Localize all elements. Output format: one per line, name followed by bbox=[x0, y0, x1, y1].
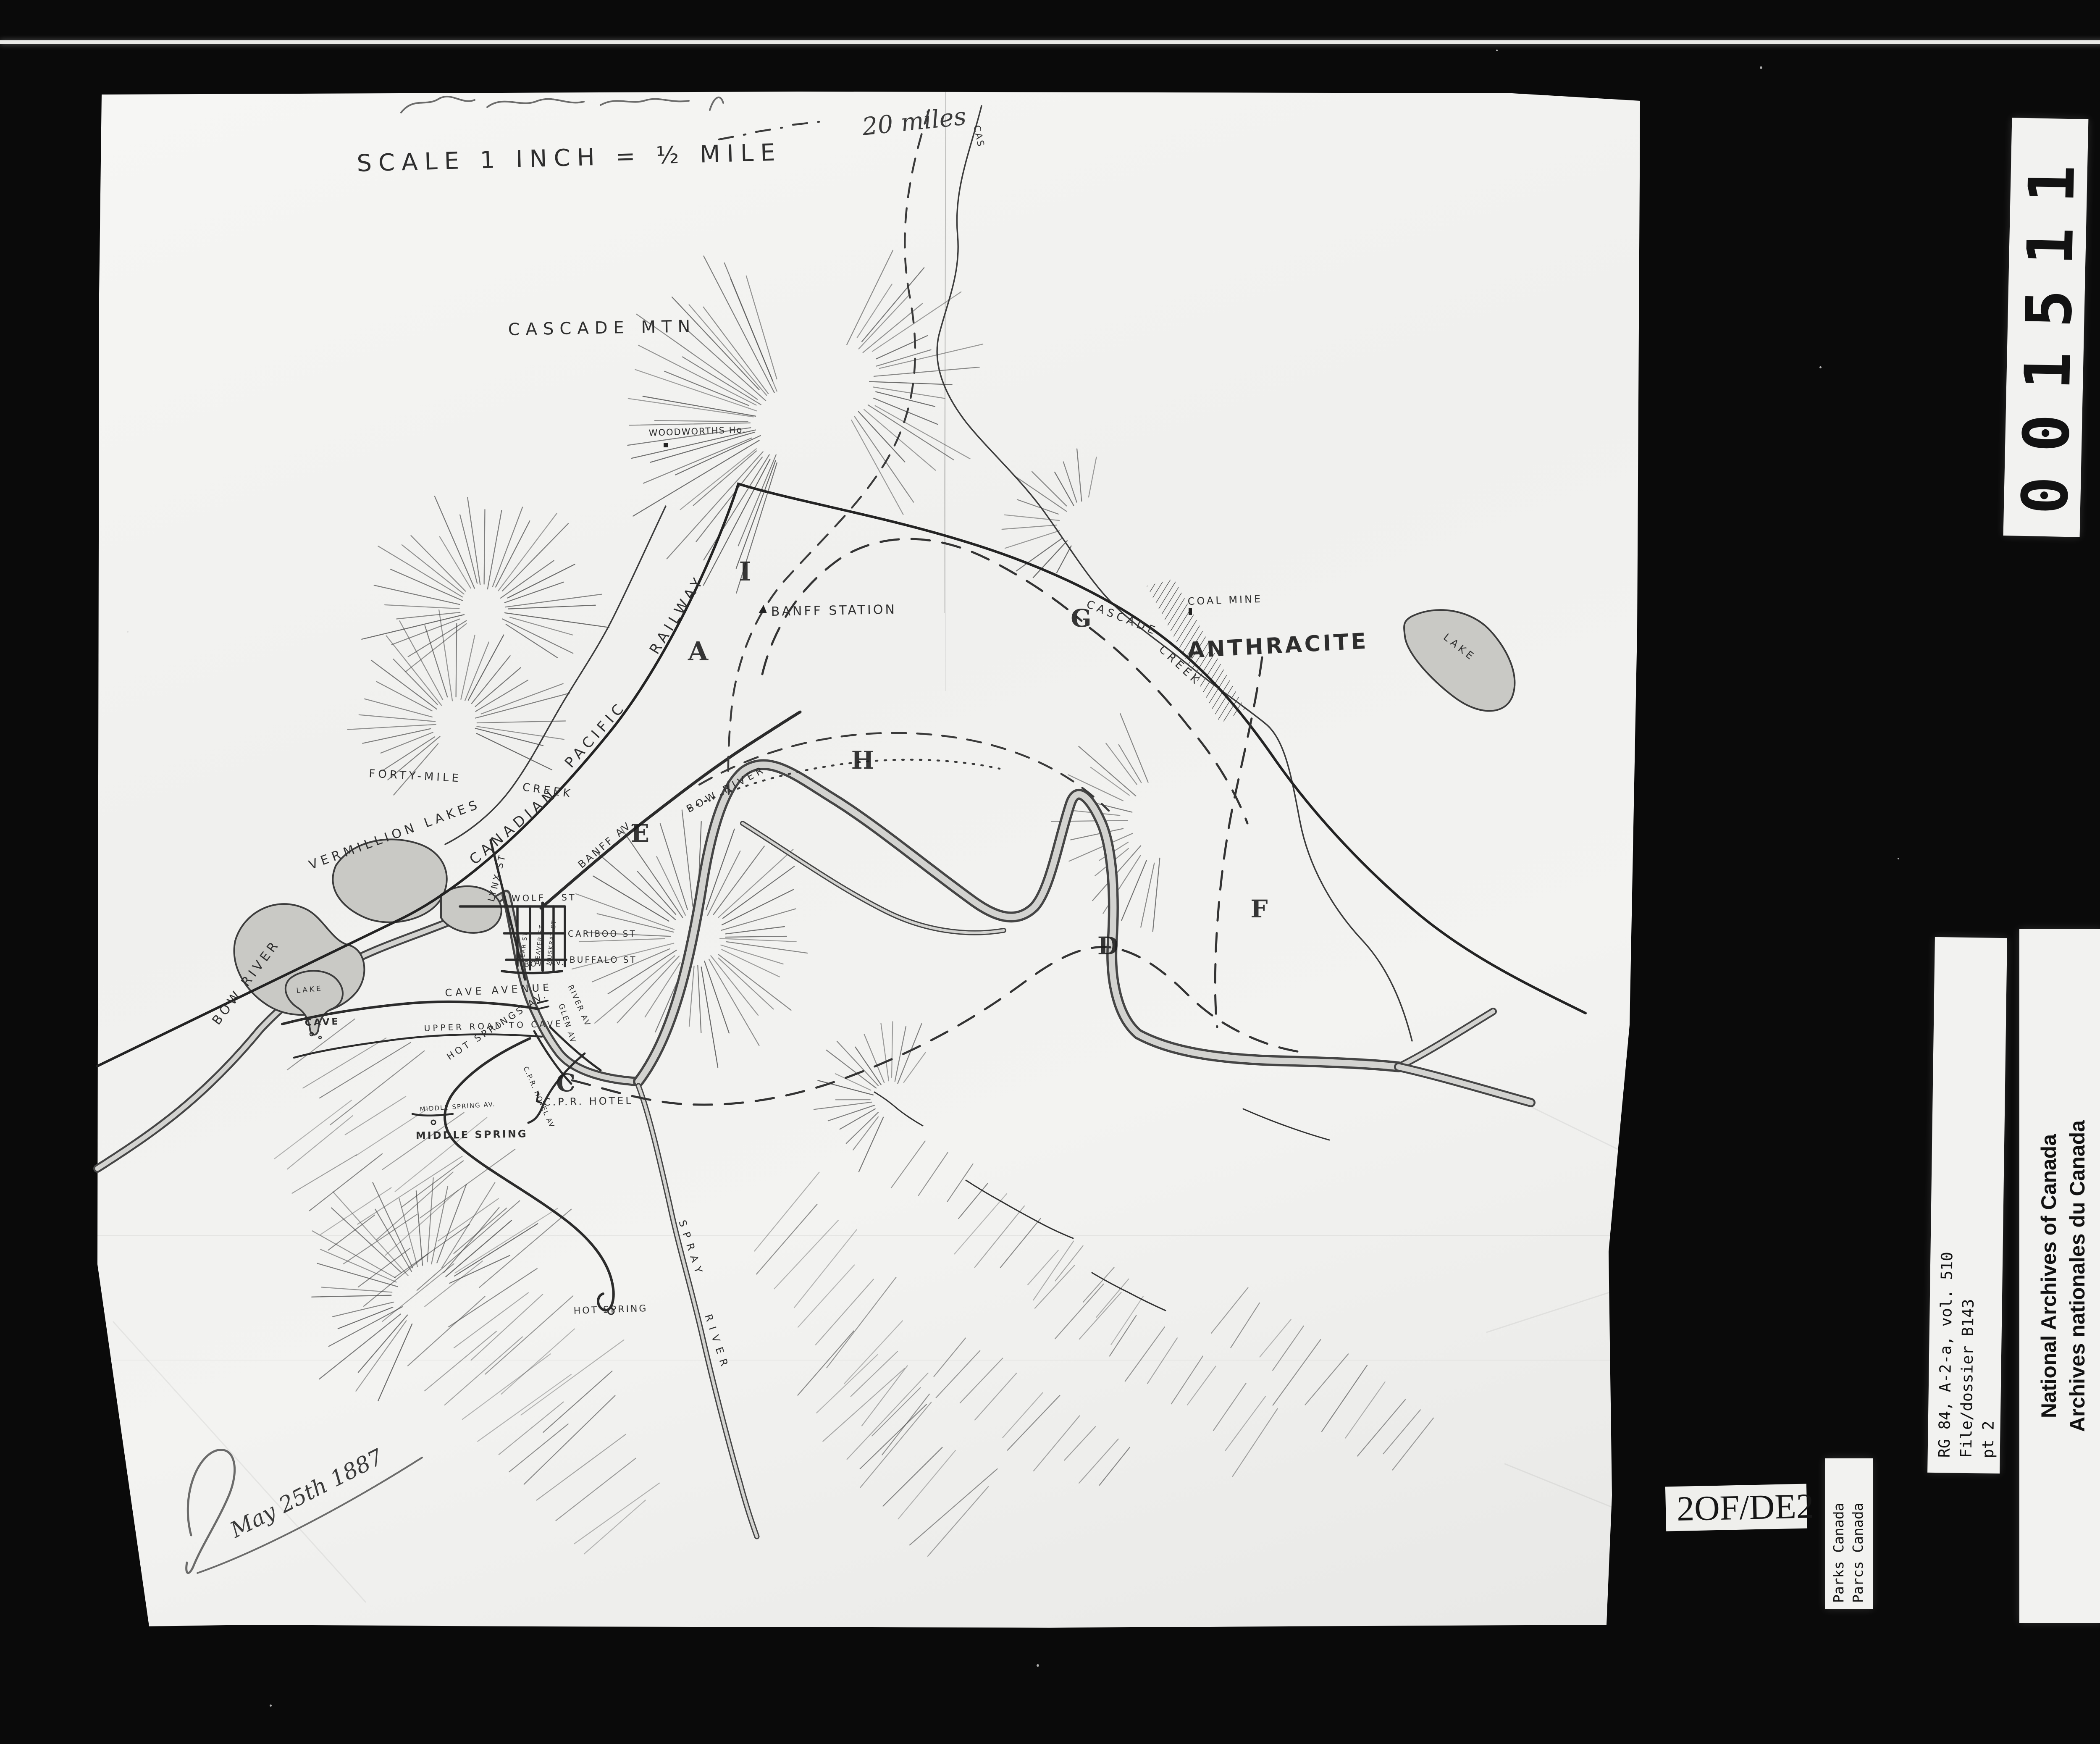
reference-strip: RG 84, A-2-a, vol. 510 File/dossier B143… bbox=[1927, 937, 2007, 1473]
wolf-street-label: WOLF ST bbox=[512, 892, 577, 904]
rivers-and-lakes bbox=[97, 106, 1531, 1537]
microfilm-frame: SCALE 1 INCH = ½ MILE CAS CASCADE MTN WO… bbox=[0, 0, 2100, 1744]
page-counter-right: 2 bbox=[1796, 1486, 1814, 1527]
railway-label-canadian: CANADIAN bbox=[466, 785, 561, 868]
archives-line-1: National Archives of Canada bbox=[2034, 929, 2063, 1623]
cave-label: CAVE bbox=[304, 1016, 340, 1028]
archives-strip: National Archives of Canada Archives nat… bbox=[2019, 929, 2100, 1623]
anthracite-label: ANTHRACITE bbox=[1187, 628, 1369, 663]
cascade-creek-line bbox=[937, 106, 1412, 1041]
marker-f: F bbox=[1250, 895, 1268, 923]
parks-line-1: Parks Canada bbox=[1829, 1458, 1848, 1603]
page-counter-label: 2 OF/DE 2 bbox=[1665, 1484, 1807, 1531]
handwritten-annotations: 20 miles May 25th 1887 bbox=[186, 97, 968, 1573]
buffalo-street-label: BUFFALO ST bbox=[570, 955, 637, 965]
cascade-label-fragment: CAS bbox=[971, 124, 986, 148]
upper-road-to-cave bbox=[294, 1035, 542, 1058]
film-number: 001511 bbox=[2007, 118, 2092, 537]
woodworths-label: WOODWORTHS Ho. bbox=[648, 425, 746, 438]
routes bbox=[97, 92, 1585, 1311]
woodworths-house-mark bbox=[664, 443, 668, 447]
parks-strip: Parks Canada Parcs Canada bbox=[1825, 1458, 1873, 1609]
film-number-strip: 001511 bbox=[2003, 118, 2089, 537]
page-counter-left: 2 bbox=[1676, 1488, 1695, 1529]
middle-spring-avenue-road bbox=[412, 1114, 453, 1116]
cave-mark bbox=[319, 1036, 321, 1039]
forty-mile-label-1: FORTY-MILE bbox=[369, 767, 462, 785]
marker-c: C bbox=[556, 1069, 575, 1097]
middle-spring-label: MIDDLE SPRING bbox=[416, 1128, 528, 1142]
dust-speck bbox=[1496, 50, 1498, 51]
archives-line-2: Archives nationales du Canada bbox=[2063, 929, 2092, 1623]
banff-station-mark bbox=[759, 605, 767, 613]
marker-d: D bbox=[1097, 932, 1118, 960]
dust-speck bbox=[1037, 1664, 1039, 1667]
railway-label-pacific: PACIFIC bbox=[562, 698, 630, 771]
trail-cascade-valley bbox=[728, 110, 929, 794]
middle-spring-mark bbox=[431, 1120, 436, 1124]
dust-speck bbox=[1819, 366, 1822, 368]
marker-h: H bbox=[851, 746, 874, 775]
dust-speck bbox=[127, 631, 129, 633]
cascade-mtn-label: CASCADE MTN bbox=[508, 317, 696, 339]
top-dash-segments bbox=[719, 122, 819, 139]
scale-note: SCALE 1 INCH = ½ MILE bbox=[357, 139, 782, 177]
signature-flourish bbox=[186, 1450, 235, 1573]
marker-a: A bbox=[688, 636, 709, 667]
hot-spring-label: HOT SPRING bbox=[573, 1303, 648, 1316]
map-labels: SCALE 1 INCH = ½ MILE CAS CASCADE MTN WO… bbox=[209, 124, 1478, 1373]
bow-avenue-label: BOW AV. bbox=[524, 958, 565, 969]
marker-g: G bbox=[1071, 604, 1092, 633]
map-artwork: SCALE 1 INCH = ½ MILE CAS CASCADE MTN WO… bbox=[0, 0, 2100, 1744]
dust-speck bbox=[270, 1705, 272, 1707]
parks-line-2: Parcs Canada bbox=[1848, 1458, 1868, 1603]
bow-avenue-line bbox=[502, 971, 562, 973]
banff-station-label: BANFF STATION bbox=[771, 602, 897, 619]
coal-mine-mark bbox=[1189, 608, 1192, 615]
banff-avenue-label: BANFF AV. bbox=[576, 817, 637, 871]
marker-e: E bbox=[631, 819, 649, 848]
bear-street-label: BEAR ST bbox=[519, 931, 529, 963]
bridge-mark bbox=[538, 1006, 549, 1009]
marker-i: I bbox=[739, 556, 751, 587]
signature-underline bbox=[197, 1458, 422, 1573]
anthracite-lake bbox=[1404, 610, 1515, 711]
page-counter-middle: OF/DE bbox=[1694, 1486, 1797, 1529]
dust-speck bbox=[1898, 858, 1899, 859]
cariboo-street-label: CARIBOO ST bbox=[568, 929, 637, 939]
dust-speck bbox=[1760, 66, 1762, 69]
middle-spring-avenue-label: MIDDLE SPRING AV. bbox=[420, 1100, 496, 1113]
coal-mine-label: COAL MINE bbox=[1187, 593, 1263, 607]
top-note-text: 20 miles bbox=[860, 102, 967, 141]
